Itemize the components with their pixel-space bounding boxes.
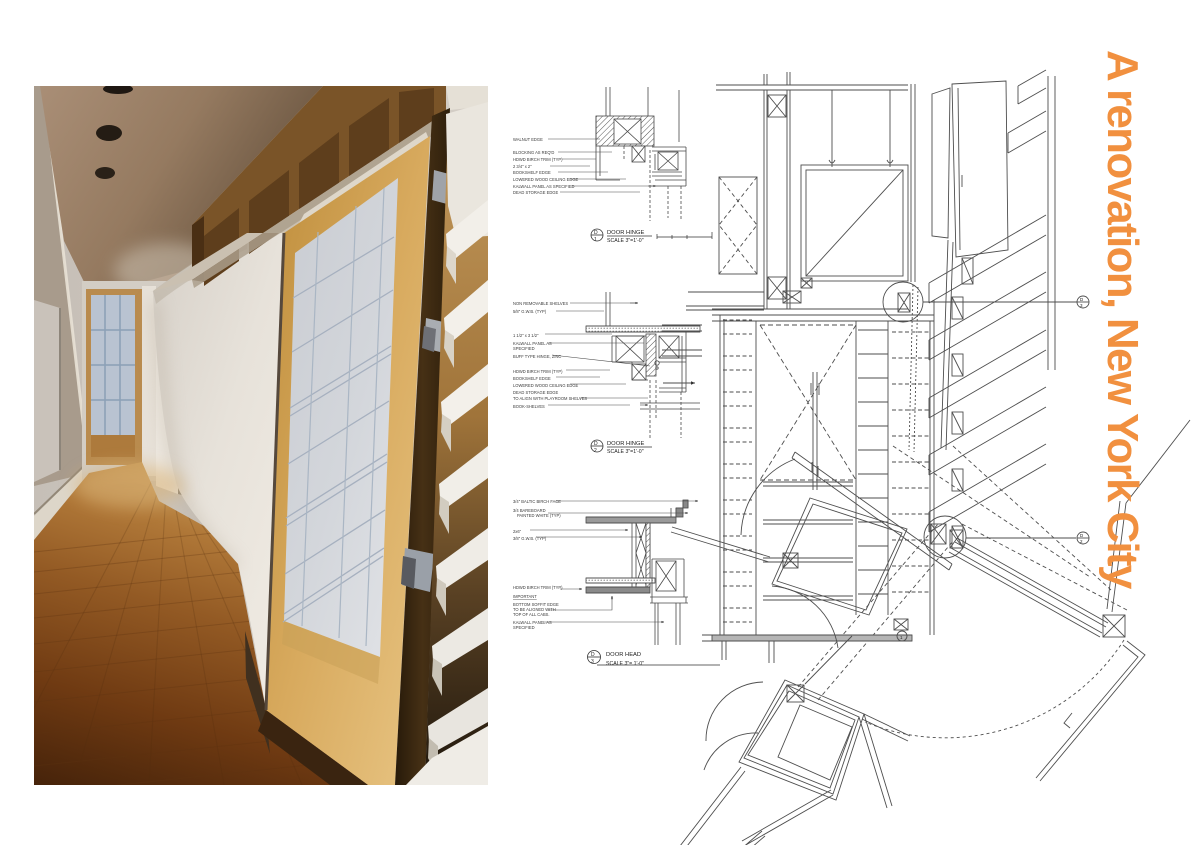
svg-text:1: 1 [594, 237, 597, 243]
svg-text:3: 3 [591, 659, 594, 665]
svg-text:D: D [1080, 533, 1084, 538]
svg-text:SPECIFIED: SPECIFIED [513, 346, 535, 351]
svg-text:HDWD BIRCH TRIM (TYP): HDWD BIRCH TRIM (TYP) [513, 369, 563, 374]
svg-text:KALWALL PANEL AS SPECIFIED: KALWALL PANEL AS SPECIFIED [513, 184, 575, 189]
svg-text:BOOK-SHELVES: BOOK-SHELVES [513, 404, 545, 409]
svg-text:1 1/2" x 3 1/2": 1 1/2" x 3 1/2" [513, 333, 539, 338]
svg-text:3/8" G.W.B. (TYP): 3/8" G.W.B. (TYP) [513, 536, 547, 541]
svg-text:D: D [594, 441, 598, 447]
svg-text:PAINTED WHITE (TYP): PAINTED WHITE (TYP) [517, 513, 561, 518]
svg-text:BUFF TYPE HINGE, ZINC: BUFF TYPE HINGE, ZINC [513, 354, 561, 359]
svg-text:SPECIFIED: SPECIFIED [513, 625, 535, 630]
svg-text:5/8" G.W.B. (TYP): 5/8" G.W.B. (TYP) [513, 309, 547, 314]
svg-text:SCALE 3"=1'-0": SCALE 3"=1'-0" [607, 238, 644, 244]
svg-text:SCALE 3"=1'-0": SCALE 3"=1'-0" [607, 449, 644, 455]
svg-text:SCALE 3"= 1'-0": SCALE 3"= 1'-0" [606, 661, 644, 667]
svg-text:HDWD BIRCH TRIM (TYP): HDWD BIRCH TRIM (TYP) [513, 157, 563, 162]
svg-text:HDWD BIRCH TRIM (TYP): HDWD BIRCH TRIM (TYP) [513, 585, 563, 590]
svg-text:BOOKSHELF EDGE: BOOKSHELF EDGE [513, 170, 551, 175]
svg-text:DOOR HINGE: DOOR HINGE [607, 441, 644, 447]
svg-text:BOOKSHELF EDGE: BOOKSHELF EDGE [513, 376, 551, 381]
svg-text:2 3/4" x 2": 2 3/4" x 2" [513, 164, 532, 169]
svg-text:NON REMOVABLE SHELVES: NON REMOVABLE SHELVES [513, 301, 568, 306]
svg-text:2: 2 [1080, 539, 1083, 544]
svg-text:LOWERED WOOD CEILING EDGE: LOWERED WOOD CEILING EDGE [513, 383, 579, 388]
svg-text:2x6": 2x6" [513, 529, 522, 534]
svg-text:D: D [591, 652, 595, 658]
svg-text:DEAD STORAGE EDGE: DEAD STORAGE EDGE [513, 390, 558, 395]
svg-text:DOOR HEAD: DOOR HEAD [606, 652, 641, 658]
svg-text:DEAD STORAGE EDGE: DEAD STORAGE EDGE [513, 190, 558, 195]
svg-text:WALNUT EDGE: WALNUT EDGE [513, 137, 543, 142]
svg-text:TOP OF ALL CABS.: TOP OF ALL CABS. [513, 612, 550, 617]
svg-text:IMPORTANT: IMPORTANT [513, 594, 537, 599]
svg-text:DOOR HINGE: DOOR HINGE [607, 230, 644, 236]
svg-text:BLOCKING AS REQ'D: BLOCKING AS REQ'D [513, 150, 554, 155]
svg-text:3/4" BALTIC BIRCH FACE: 3/4" BALTIC BIRCH FACE [513, 499, 561, 504]
svg-text:D: D [1080, 297, 1084, 302]
svg-text:3: 3 [1080, 303, 1083, 308]
svg-text:2: 2 [594, 448, 597, 454]
svg-text:LOWERED WOOD CEILING EDGE: LOWERED WOOD CEILING EDGE [513, 177, 579, 182]
svg-text:TO ALIGN WITH PLAYROOM SHE: TO ALIGN WITH PLAYROOM SHELVES [513, 396, 587, 401]
svg-text:D: D [594, 230, 598, 236]
